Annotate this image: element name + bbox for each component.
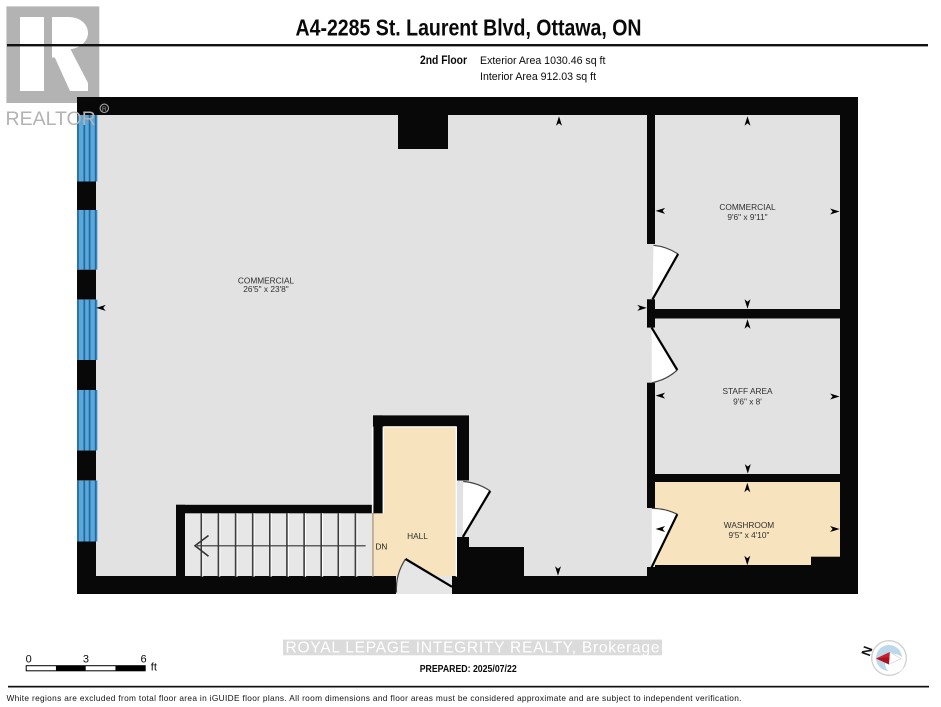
svg-text:ROYAL LEPAGE INTEGRITY REALTY,: ROYAL LEPAGE INTEGRITY REALTY, Brokerage (286, 640, 660, 657)
svg-text:6: 6 (140, 654, 146, 666)
svg-text:White regions are excluded fro: White regions are excluded from total fl… (7, 693, 742, 703)
svg-text:A4-2285 St. Laurent Blvd, Otta: A4-2285 St. Laurent Blvd, Ottawa, ON (296, 14, 642, 40)
svg-text:STAFF AREA: STAFF AREA (722, 386, 773, 396)
svg-text:Exterior Area 1030.46 sq ft: Exterior Area 1030.46 sq ft (480, 55, 605, 67)
svg-text:3: 3 (83, 654, 89, 666)
svg-text:COMMERCIAL: COMMERCIAL (719, 202, 776, 212)
svg-text:0: 0 (26, 654, 32, 666)
svg-text:R: R (102, 106, 107, 113)
svg-text:REALTOR: REALTOR (6, 108, 96, 130)
svg-text:Interior Area 912.03 sq ft: Interior Area 912.03 sq ft (480, 71, 596, 83)
svg-text:PREPARED: 2025/07/22: PREPARED: 2025/07/22 (420, 664, 517, 675)
svg-text:2nd Floor: 2nd Floor (420, 55, 467, 67)
svg-text:9'6" x 8': 9'6" x 8' (733, 397, 762, 407)
svg-text:9'5" x 4'10": 9'5" x 4'10" (729, 530, 770, 540)
svg-text:ft: ft (151, 662, 157, 674)
svg-text:HALL: HALL (407, 531, 428, 541)
svg-text:9'6" x 9'11": 9'6" x 9'11" (727, 212, 767, 222)
svg-text:WASHROOM: WASHROOM (724, 520, 774, 530)
svg-text:26'5" x 23'8": 26'5" x 23'8" (243, 284, 289, 294)
svg-text:DN: DN (376, 543, 388, 552)
